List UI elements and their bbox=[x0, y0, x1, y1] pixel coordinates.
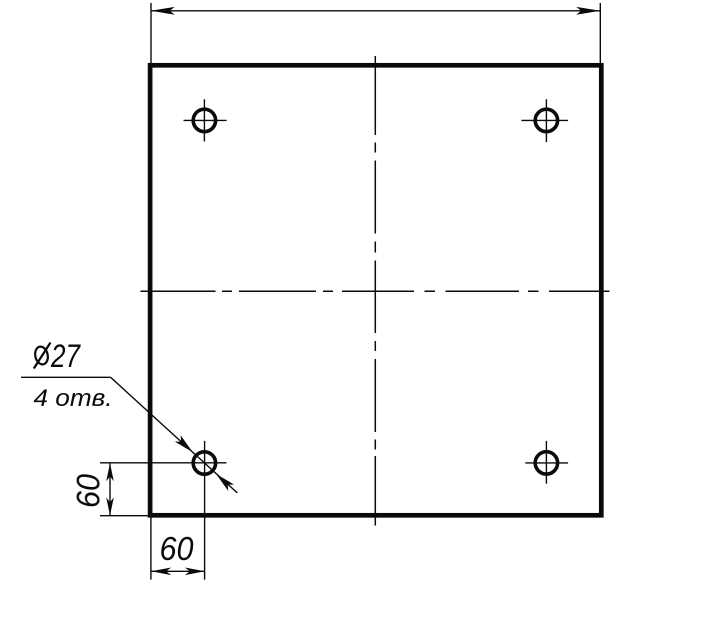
svg-text:60: 60 bbox=[70, 474, 106, 508]
svg-text:60: 60 bbox=[160, 530, 195, 567]
svg-text:27: 27 bbox=[50, 338, 81, 374]
svg-text:4 отв.: 4 отв. bbox=[34, 385, 113, 412]
